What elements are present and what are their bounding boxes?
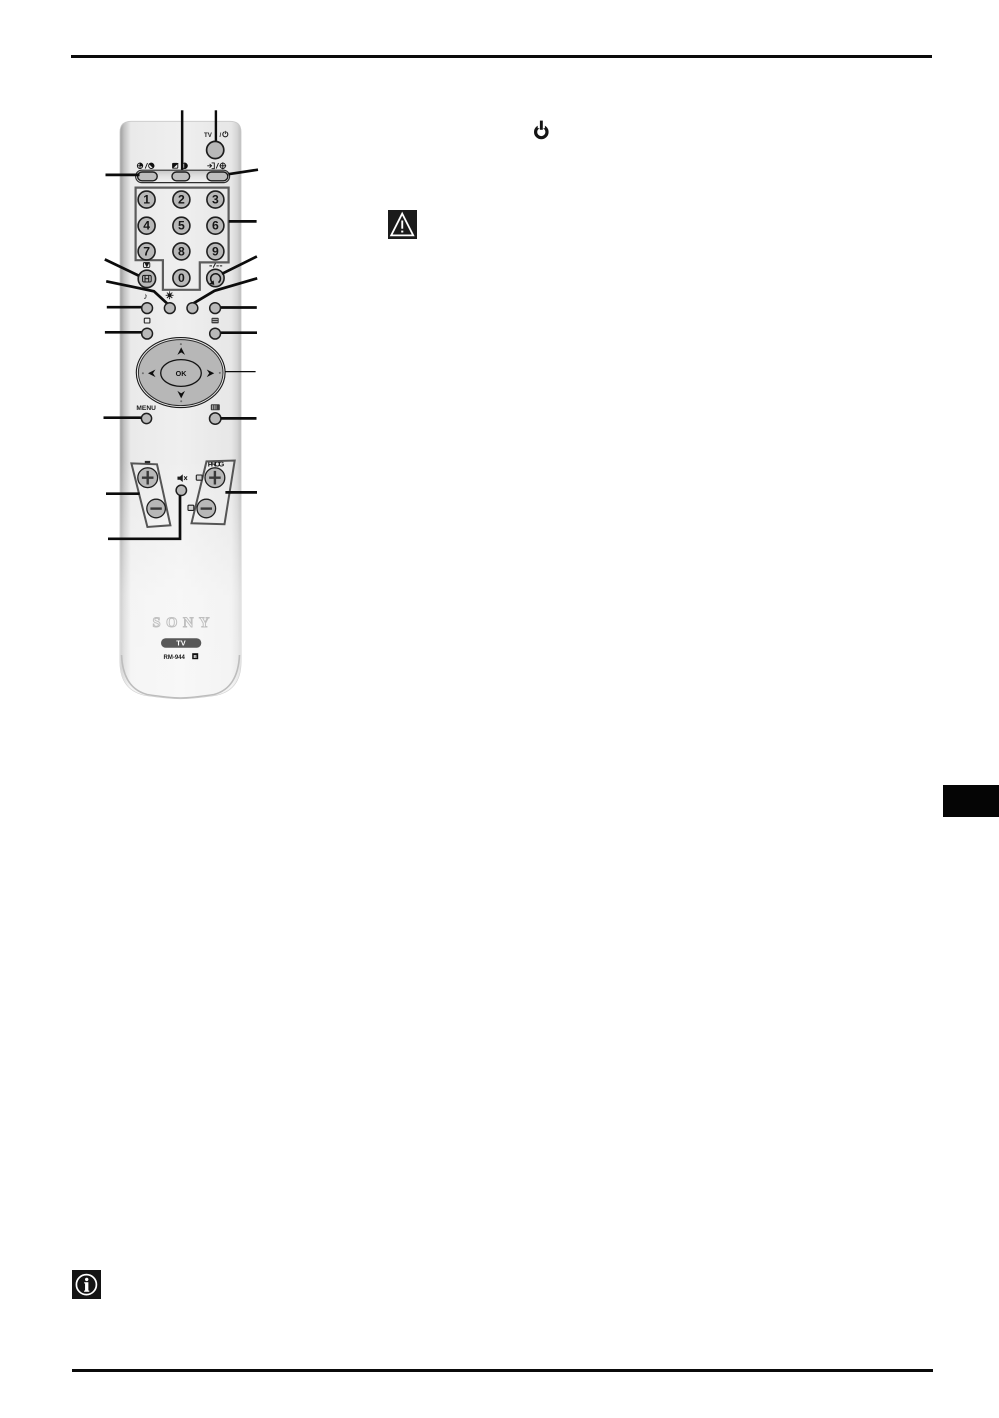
svg-text:RM-944: RM-944	[164, 655, 186, 661]
svg-text:8: 8	[178, 244, 185, 258]
svg-text:1: 1	[143, 193, 150, 207]
svg-text:MENU: MENU	[136, 405, 156, 412]
svg-text:♪: ♪	[143, 291, 148, 301]
svg-text:2: 2	[178, 193, 185, 207]
svg-text:TV: TV	[176, 639, 186, 648]
svg-text:5: 5	[178, 219, 185, 233]
svg-text:6: 6	[212, 219, 219, 233]
svg-text:TV: TV	[204, 132, 213, 139]
svg-text:4: 4	[143, 219, 150, 233]
svg-text:3: 3	[212, 193, 219, 207]
svg-text:/: /	[220, 132, 222, 139]
svg-text:0: 0	[178, 271, 185, 285]
svg-text:9: 9	[212, 244, 219, 258]
svg-text:i: i	[84, 1275, 89, 1296]
svg-text:OK: OK	[176, 369, 188, 378]
svg-text:7: 7	[143, 244, 150, 258]
